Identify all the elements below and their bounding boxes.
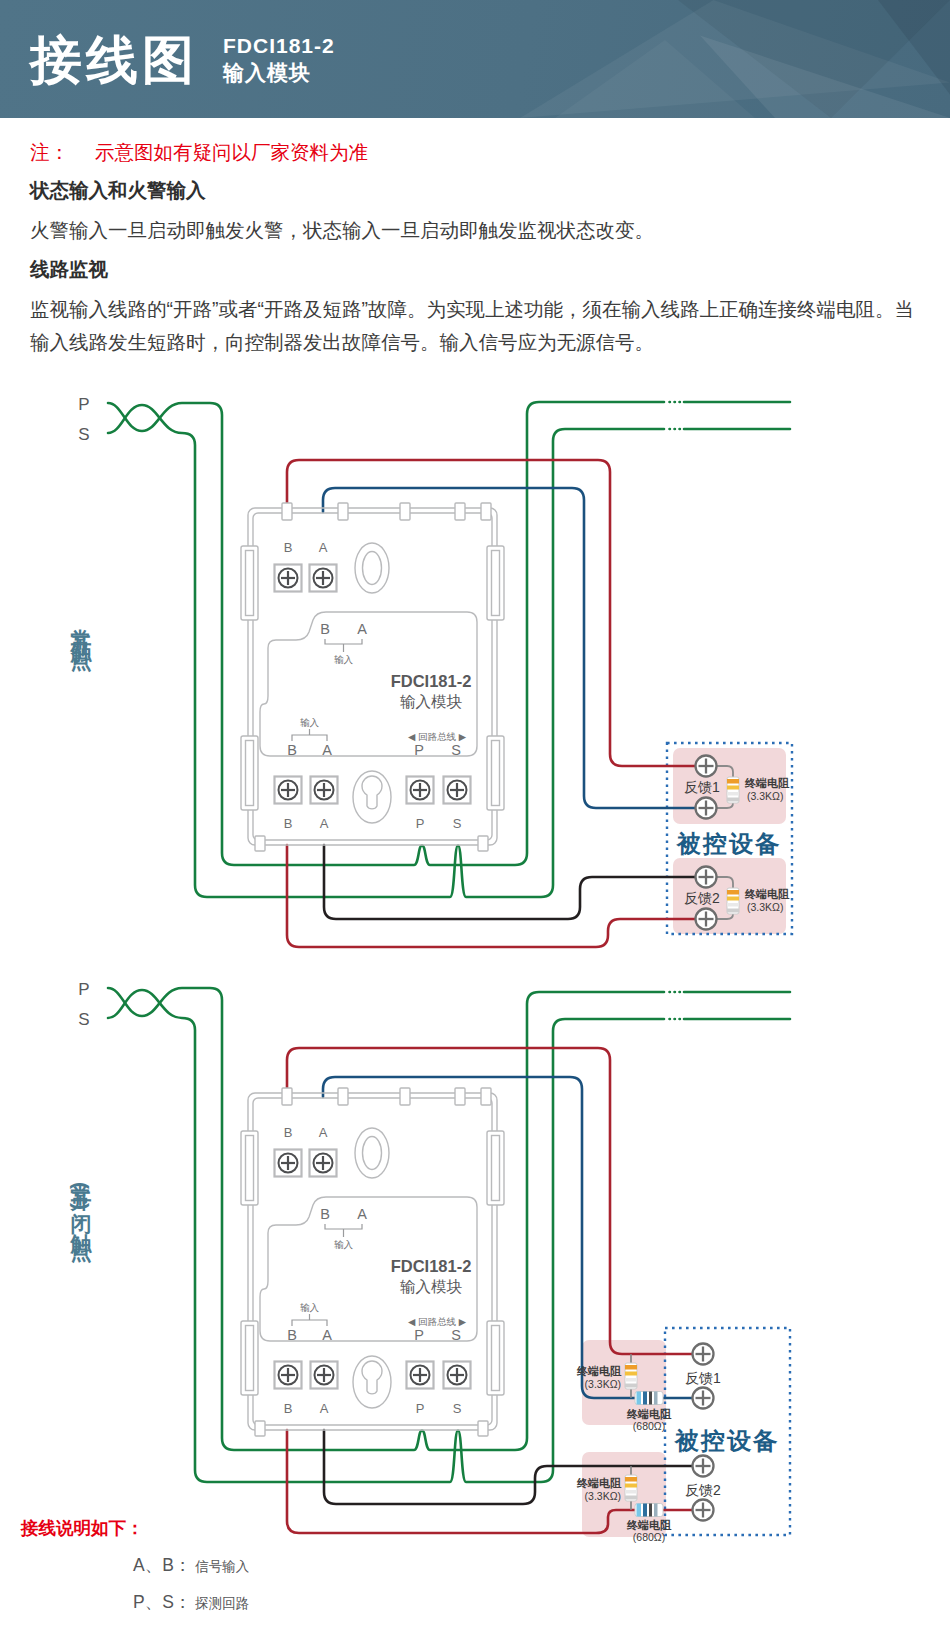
feedback1-screw-bottom <box>696 798 717 819</box>
feedback2-screw-bottom <box>693 1500 714 1521</box>
terminal-resistor-3k3-fb1 <box>727 777 739 803</box>
loop-label-s: S <box>78 1010 89 1029</box>
feedback2-label: 反馈2 <box>684 890 720 906</box>
page: 接线图 FDCI181-2 输入模块 注：示意图如有疑问以厂家资料为准 状态输入… <box>0 0 950 1629</box>
feedback1-label: 反馈1 <box>684 779 720 795</box>
resistor33-value-fb1: (3.3KΩ) <box>585 1378 621 1390</box>
wire-a-bottom-to-feedback2 <box>324 845 695 919</box>
resistor-value-fb1: (3.3KΩ) <box>747 790 783 802</box>
terminal-resistor-3k3-fb1 <box>625 1363 637 1389</box>
loop-label-p: P <box>78 395 89 414</box>
terminal-resistor-3k3-fb2 <box>625 1475 637 1501</box>
resistor-label-fb2: 终端电阻 <box>744 888 790 900</box>
feedback1-screw-top <box>696 756 717 777</box>
feedback1-screw-bottom <box>693 1388 714 1409</box>
wire-loop-s <box>108 990 790 1482</box>
resistor-value-fb2: (3.3KΩ) <box>747 901 783 913</box>
resistor680-label-fb1: 终端电阻 <box>626 1408 672 1420</box>
terminal-resistor-680-fb2 <box>635 1504 663 1517</box>
resistor33-label-fb1: 终端电阻 <box>576 1365 622 1377</box>
resistor33-label-fb2: 终端电阻 <box>576 1477 622 1489</box>
controlled-device-title: 被控设备 <box>674 1427 779 1454</box>
input-module-1 <box>241 503 504 851</box>
feedback2-screw-top <box>696 867 717 888</box>
diagram-2: P S 反馈1 反馈2 终端电阻 (3. <box>78 980 790 1543</box>
wiring-diagram: B A B A 输入 FDCI181-2 输入模块 输入 B A ◀ 回路总线 … <box>0 0 950 1629</box>
wire-a-top-to-feedback1 <box>323 488 695 808</box>
loop-label-s: S <box>78 425 89 444</box>
feedback2-screw-top <box>693 1456 714 1477</box>
controlled-device-title: 被控设备 <box>676 830 781 857</box>
resistor680-value-fb1: (680Ω) <box>633 1420 665 1432</box>
resistor-label-fb1: 终端电阻 <box>744 777 790 789</box>
resistor680-value-fb2: (680Ω) <box>633 1531 665 1543</box>
loop-label-p: P <box>78 980 89 999</box>
feedback2-label: 反馈2 <box>685 1482 721 1498</box>
terminal-resistor-3k3-fb2 <box>727 888 739 914</box>
feedback2-screw-bottom <box>696 909 717 930</box>
terminal-resistor-680-fb1 <box>635 1392 663 1405</box>
feedback1-screw-top <box>693 1344 714 1365</box>
diagram-1: P S 反馈1 反馈2 终端电阻 (3.3KΩ) 终端电阻 <box>78 395 792 947</box>
input-module-2 <box>241 1088 504 1436</box>
resistor33-value-fb2: (3.3KΩ) <box>585 1490 621 1502</box>
feedback1-label: 反馈1 <box>685 1370 721 1386</box>
resistor680-label-fb2: 终端电阻 <box>626 1519 672 1531</box>
